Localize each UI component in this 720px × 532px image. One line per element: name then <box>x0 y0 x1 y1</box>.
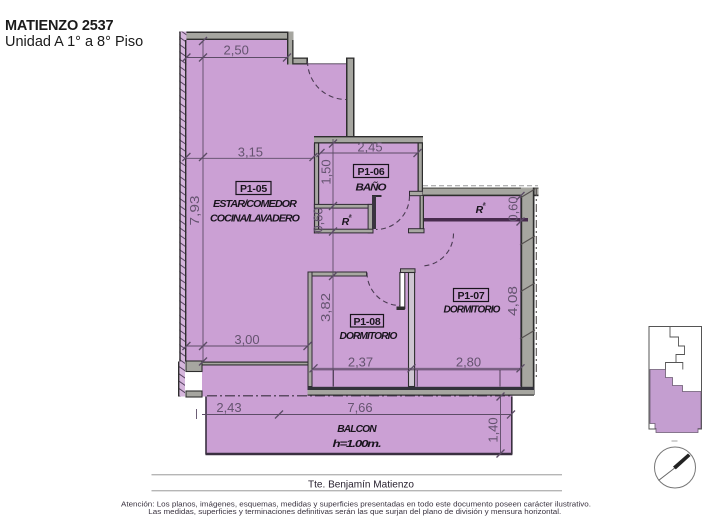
svg-text:BALCON: BALCON <box>337 423 377 435</box>
svg-text:P1-06: P1-06 <box>357 166 384 178</box>
svg-text:h=1.00m.: h=1.00m. <box>333 438 382 450</box>
svg-text:1,40: 1,40 <box>486 417 501 442</box>
svg-text:DORMITORIO: DORMITORIO <box>444 304 501 316</box>
svg-text:2,50: 2,50 <box>224 43 249 58</box>
svg-text:Tte. Benjamín Matienzo: Tte. Benjamín Matienzo <box>308 479 414 491</box>
svg-text:2,80: 2,80 <box>456 354 481 369</box>
svg-text:3,00: 3,00 <box>234 332 259 347</box>
svg-text:MATIENZO 2537: MATIENZO 2537 <box>5 18 113 34</box>
svg-text:Unidad A 1° a 8° Piso: Unidad A 1° a 8° Piso <box>5 34 143 50</box>
svg-text:COCINA/LAVADERO: COCINA/LAVADERO <box>210 213 300 225</box>
svg-text:2,43: 2,43 <box>216 400 241 415</box>
svg-text:7,93: 7,93 <box>187 196 202 226</box>
svg-text:4,08: 4,08 <box>505 286 520 316</box>
svg-text:1,50: 1,50 <box>319 159 334 184</box>
svg-text:7,66: 7,66 <box>347 400 372 415</box>
svg-text:2,37: 2,37 <box>348 354 373 369</box>
svg-text:BAÑO: BAÑO <box>356 181 387 194</box>
svg-text:Las medidas, superficies y ter: Las medidas, superficies y terminaciones… <box>148 509 561 516</box>
svg-text:3,15: 3,15 <box>238 145 263 160</box>
svg-text:3,82: 3,82 <box>318 293 333 322</box>
svg-text:P1-08: P1-08 <box>353 316 380 328</box>
svg-text:0,60: 0,60 <box>506 196 521 221</box>
svg-text:P1-05: P1-05 <box>240 183 267 195</box>
svg-text:Atención: Los planos, imágenes: Atención: Los planos, imágenes, esquemas… <box>121 501 591 508</box>
svg-text:DORMITORIO: DORMITORIO <box>340 330 398 342</box>
svg-text:2,45: 2,45 <box>357 140 382 155</box>
svg-text:ESTAR/COMEDOR: ESTAR/COMEDOR <box>213 198 297 210</box>
svg-text:0,60: 0,60 <box>311 207 326 232</box>
svg-text:P1-07: P1-07 <box>457 290 484 302</box>
